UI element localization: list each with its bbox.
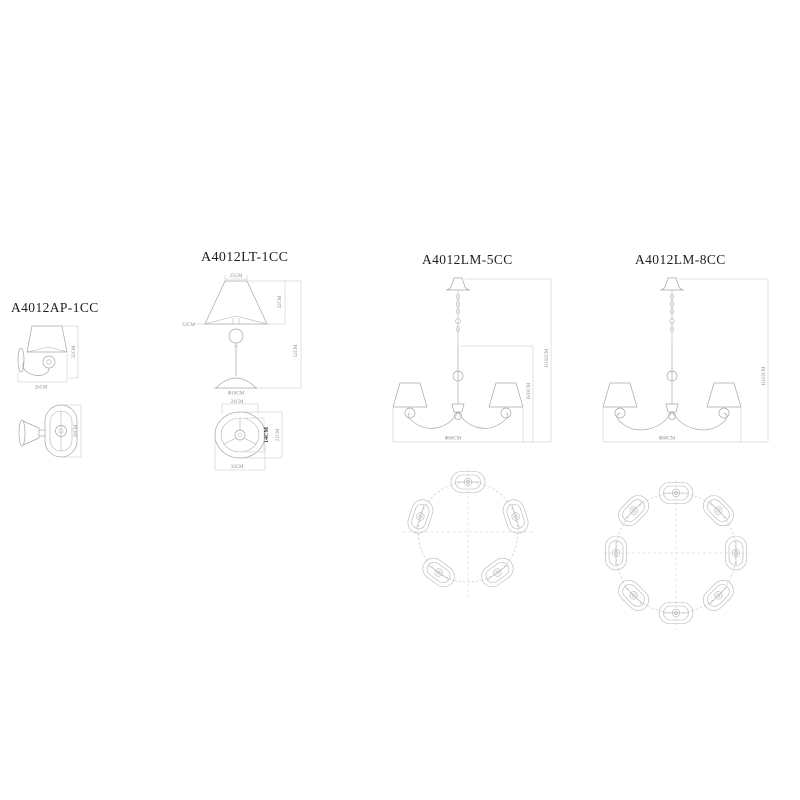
sconce-arm: [23, 361, 49, 375]
table-lamp-plan-view: 24CM 14CM 21CM 33CM: [212, 398, 307, 478]
wall-height-dim-label: 32CM: [72, 345, 77, 358]
plan-shade-2: [614, 491, 653, 530]
left-arm: [408, 412, 458, 428]
chandelier8-front-view: Φ80CM H102CM: [601, 276, 779, 450]
chandelier8-max-height-label: H102CM: [762, 366, 767, 385]
plan-top-dim-label: 24CM: [231, 400, 244, 405]
chandelier8-title: A4012LM-8CC: [635, 252, 726, 268]
sconce-shade: [27, 326, 67, 352]
wall-lamp-front-view: 26CM 32CM: [15, 320, 100, 400]
plan-shade-8: [699, 491, 738, 530]
ceiling-canopy: [446, 278, 470, 290]
table-shade-bottom-dim-label: 32CM: [182, 323, 195, 328]
center-cup: [452, 404, 464, 412]
chandelier5-max-height-label: H102CM: [545, 348, 550, 367]
chandelier5-title: A4012LM-5CC: [422, 252, 513, 268]
table-total-height-dim-label: 52CM: [294, 344, 299, 357]
left-shade: [393, 383, 427, 407]
right-shade: [707, 383, 741, 407]
left-shade: [603, 383, 637, 407]
right-arm: [458, 412, 508, 428]
wall-depth-dim-label: 20CM: [74, 424, 79, 437]
chandelier5-front-view: Φ66CM H43CM H102CM: [391, 276, 563, 450]
sconce-knob: [43, 356, 55, 368]
table-shade-height-dim-label: 22CM: [278, 295, 283, 308]
center-cup: [666, 404, 678, 412]
chandelier5-plan-view: [393, 460, 543, 605]
table-shade: [205, 281, 267, 324]
table-base-dim-label: Φ18CM: [228, 392, 245, 397]
plan-side-dim-label: 21CM: [276, 428, 281, 441]
table-base: [216, 378, 256, 388]
table-lamp-title: A4012LT-1CC: [201, 250, 288, 266]
table-lamp-front-view: Φ18CM 25CM 22CM 52CM 32CM: [180, 266, 310, 400]
chandelier5-body-height-label: H43CM: [527, 382, 532, 399]
wall-lamp-side-view: 20CM: [15, 399, 100, 469]
plan-shade-4: [614, 576, 653, 615]
wall-plate: [18, 348, 24, 372]
wall-width-dim-label: 26CM: [35, 386, 48, 391]
plan-shade-4: [477, 554, 517, 591]
plan-bottom-dim-label: 33CM: [231, 465, 244, 470]
technical-drawing-sheet: A4012AP-1CC 26CM 32CM: [0, 0, 800, 800]
plan-shade-6: [699, 576, 738, 615]
chandelier5-diameter-label: Φ66CM: [445, 437, 462, 442]
plan-hub: [235, 430, 245, 440]
right-arm: [672, 412, 727, 430]
plan-shade-3: [419, 554, 459, 591]
left-arm: [617, 412, 672, 430]
ceiling-canopy: [660, 278, 684, 290]
mount-cone: [23, 421, 39, 445]
table-shade-top-dim-label: 25CM: [230, 274, 243, 279]
plan-shade-5: [500, 497, 530, 536]
plan-shade-2: [405, 497, 435, 536]
wall-lamp-title: A4012AP-1CC: [11, 300, 99, 316]
table-ball: [229, 329, 243, 343]
right-shade: [489, 383, 523, 407]
mount-cone-rim: [19, 420, 25, 446]
chandelier8-diameter-label: Φ80CM: [659, 437, 676, 442]
chandelier8-plan-view: [598, 462, 758, 647]
